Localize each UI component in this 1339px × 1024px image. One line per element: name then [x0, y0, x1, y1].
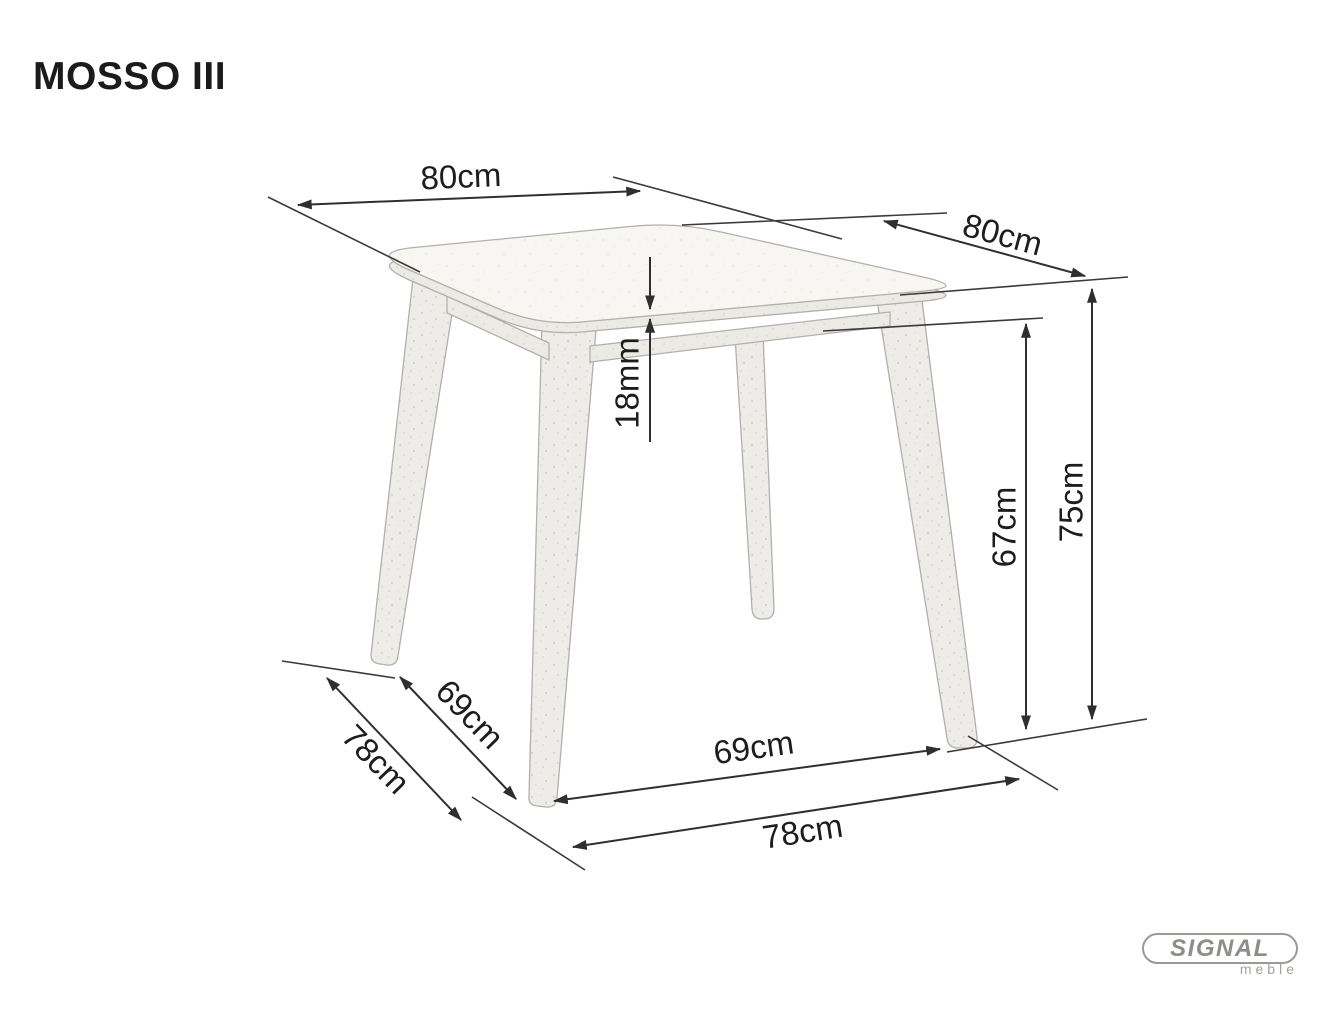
brand-logo: SIGNAL	[1142, 933, 1298, 964]
dimension-label-top-left-80: 80cm	[420, 156, 502, 196]
brand-logo-text: SIGNAL	[1170, 935, 1270, 963]
brand-logo-subtitle: meble	[1222, 961, 1298, 977]
dimension-label-height-67: 67cm	[986, 487, 1023, 568]
dimension-label-front-78: 78cm	[760, 807, 845, 856]
table-leg-right	[876, 294, 977, 748]
product-drawing-page: MOSSO III	[0, 0, 1339, 1024]
extension-line-top-left	[268, 197, 420, 272]
extension-line-back-corner	[682, 213, 947, 225]
table-leg-front-center	[529, 322, 596, 807]
extension-line-right-foot	[968, 736, 1058, 790]
dimension-label-height-75: 75cm	[1053, 462, 1090, 543]
dimension-label-front-69: 69cm	[711, 723, 796, 771]
table-leg-back	[735, 333, 774, 619]
table-diagram: 80cm 80cm 18mm 67cm 75cm 69cm 78cm 69cm …	[0, 0, 1339, 1024]
table-leg-front-left	[371, 278, 456, 665]
extension-line-front-foot	[472, 797, 585, 870]
dimension-label-thickness-18mm: 18mm	[609, 337, 646, 429]
dimension-label-side-69: 69cm	[429, 672, 512, 756]
